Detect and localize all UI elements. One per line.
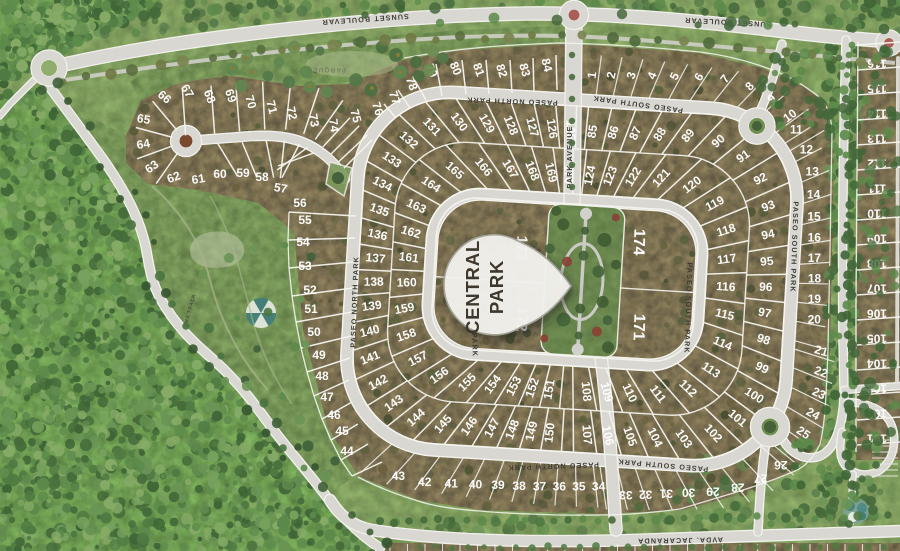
svg-text:38: 38 [512, 479, 526, 493]
svg-text:137: 137 [365, 250, 387, 266]
svg-text:29: 29 [706, 484, 720, 498]
svg-text:CENTRAL: CENTRAL [462, 240, 483, 334]
svg-text:150: 150 [541, 422, 557, 444]
svg-text:160: 160 [396, 275, 417, 290]
svg-text:PARK AVENUE: PARK AVENUE [565, 125, 574, 188]
svg-text:15: 15 [807, 209, 821, 223]
svg-text:12: 12 [800, 143, 814, 157]
svg-text:65: 65 [136, 111, 152, 127]
svg-text:48: 48 [315, 369, 329, 383]
svg-text:171: 171 [630, 314, 648, 341]
svg-text:58: 58 [255, 170, 269, 184]
svg-text:60: 60 [213, 167, 227, 181]
svg-text:74: 74 [326, 118, 342, 133]
svg-text:139: 139 [361, 298, 383, 315]
svg-text:85: 85 [584, 123, 600, 139]
svg-text:126: 126 [544, 118, 561, 140]
svg-text:28: 28 [731, 481, 745, 495]
svg-text:47: 47 [320, 390, 334, 404]
svg-text:59: 59 [236, 166, 250, 180]
svg-text:20: 20 [808, 313, 822, 327]
svg-text:41: 41 [445, 476, 459, 490]
svg-text:39: 39 [491, 478, 505, 492]
svg-text:AVDA. JACARANDA: AVDA. JACARANDA [637, 535, 723, 545]
svg-text:37: 37 [533, 479, 547, 493]
svg-text:PARK: PARK [486, 260, 507, 314]
svg-text:116: 116 [716, 279, 737, 294]
svg-text:108: 108 [579, 381, 595, 403]
svg-text:42: 42 [418, 475, 432, 489]
svg-text:54: 54 [296, 235, 310, 249]
svg-text:107: 107 [579, 424, 595, 445]
svg-text:117: 117 [716, 251, 737, 267]
svg-text:14: 14 [807, 187, 821, 201]
svg-text:32: 32 [639, 487, 653, 501]
svg-text:34: 34 [592, 479, 606, 493]
svg-text:56: 56 [293, 196, 307, 210]
svg-text:36: 36 [553, 480, 567, 494]
svg-text:57: 57 [273, 180, 289, 196]
svg-text:73: 73 [306, 113, 322, 129]
svg-text:55: 55 [298, 213, 312, 227]
svg-text:95: 95 [760, 254, 775, 269]
svg-text:26: 26 [774, 458, 788, 472]
svg-text:106: 106 [867, 307, 887, 321]
svg-text:33: 33 [619, 488, 633, 502]
svg-text:61: 61 [191, 171, 207, 187]
svg-text:104: 104 [867, 357, 887, 371]
svg-text:27: 27 [754, 472, 768, 486]
svg-text:43: 43 [392, 469, 406, 483]
svg-text:52: 52 [303, 283, 317, 297]
svg-text:16: 16 [808, 231, 822, 245]
svg-text:96: 96 [759, 280, 773, 295]
svg-text:31: 31 [659, 487, 673, 501]
svg-text:19: 19 [808, 292, 822, 306]
svg-text:17: 17 [808, 251, 822, 265]
svg-text:174: 174 [630, 229, 648, 256]
svg-text:51: 51 [304, 302, 318, 316]
svg-text:18: 18 [808, 272, 822, 286]
svg-text:45: 45 [335, 424, 349, 438]
svg-text:138: 138 [364, 275, 384, 289]
svg-text:49: 49 [312, 348, 326, 362]
svg-text:30: 30 [682, 486, 696, 500]
svg-text:161: 161 [398, 249, 420, 266]
svg-text:50: 50 [307, 325, 321, 339]
svg-text:35: 35 [572, 480, 586, 494]
svg-text:44: 44 [340, 444, 354, 458]
svg-text:11: 11 [790, 123, 803, 137]
svg-text:40: 40 [469, 477, 483, 491]
svg-text:64: 64 [136, 136, 152, 152]
svg-text:13: 13 [806, 165, 820, 179]
svg-text:46: 46 [327, 408, 341, 422]
